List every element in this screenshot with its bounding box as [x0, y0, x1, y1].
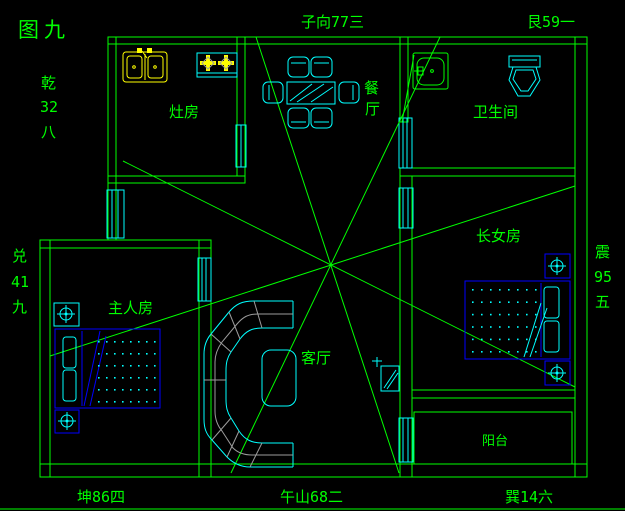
label-qian-sector: 乾: [41, 74, 56, 92]
door-bathroom: [399, 118, 412, 168]
burner-icon: [200, 55, 216, 71]
svg-text:32: 32: [40, 98, 58, 116]
svg-text:五: 五: [595, 293, 610, 311]
label-sitting-direction: 午山68二: [280, 488, 343, 506]
svg-text:95: 95: [594, 268, 612, 286]
mattress-dots: [472, 289, 537, 353]
lamp-icon: [548, 364, 566, 382]
label-kitchen: 灶房: [169, 103, 199, 121]
label-living-room: 客厅: [301, 349, 331, 367]
chair: [288, 108, 309, 128]
lamp-icon: [58, 412, 76, 430]
svg-text:厅: 厅: [365, 100, 380, 118]
label-bathroom: 卫生间: [473, 103, 518, 121]
nightstand: [55, 410, 79, 433]
kitchen-sink: [123, 48, 167, 82]
chair: [339, 82, 359, 103]
windows: [107, 118, 413, 462]
label-zhen-sector: 震: [595, 243, 610, 261]
window-master: [198, 258, 211, 301]
annotations: 图九 子向77三 艮59一 乾 32 八 兑 41 九 震 95 五 坤86四 …: [11, 13, 612, 506]
label-dining: 餐: [364, 79, 379, 97]
pillow: [544, 321, 559, 352]
nightstand: [545, 254, 570, 278]
stove: [197, 53, 237, 77]
floorplan-canvas[interactable]: 图九 子向77三 艮59一 乾 32 八 兑 41 九 震 95 五 坤86四 …: [0, 0, 625, 511]
lamp-icon: [57, 305, 75, 323]
mattress-dots: [98, 341, 156, 403]
label-master-room: 主人房: [108, 299, 153, 317]
pillow: [63, 337, 76, 368]
label-kun-sector: 坤86四: [77, 488, 125, 506]
pillow: [544, 287, 559, 318]
label-balcony: 阳台: [482, 434, 508, 449]
svg-text:九: 九: [12, 298, 27, 316]
label-facing-direction: 子向77三: [301, 13, 364, 31]
lamp-icon: [548, 257, 566, 275]
chair: [311, 108, 332, 128]
dining-table: [287, 82, 335, 104]
nightstand: [54, 303, 79, 326]
toilet: [509, 56, 540, 96]
door-balcony: [399, 418, 413, 462]
svg-text:八: 八: [41, 123, 56, 141]
master-bed: [55, 329, 160, 408]
burner-icon: [218, 55, 234, 71]
label-gen-sector: 艮59一: [527, 13, 575, 31]
chair: [311, 57, 332, 77]
chair: [288, 57, 309, 77]
label-dui-sector: 兑: [12, 247, 27, 265]
washbasin: [413, 53, 448, 89]
svg-text:41: 41: [11, 273, 29, 291]
pillow: [63, 370, 76, 401]
daughter-bed: [465, 281, 570, 359]
window-daughter-room: [399, 188, 413, 228]
nightstand: [545, 361, 570, 385]
label-daughter-room: 长女房: [476, 227, 521, 245]
label-xun-sector: 巽14六: [505, 488, 553, 506]
figure-title: 图九: [18, 18, 70, 42]
sofa: [204, 301, 293, 467]
tv: [372, 357, 399, 391]
chair: [263, 82, 283, 103]
